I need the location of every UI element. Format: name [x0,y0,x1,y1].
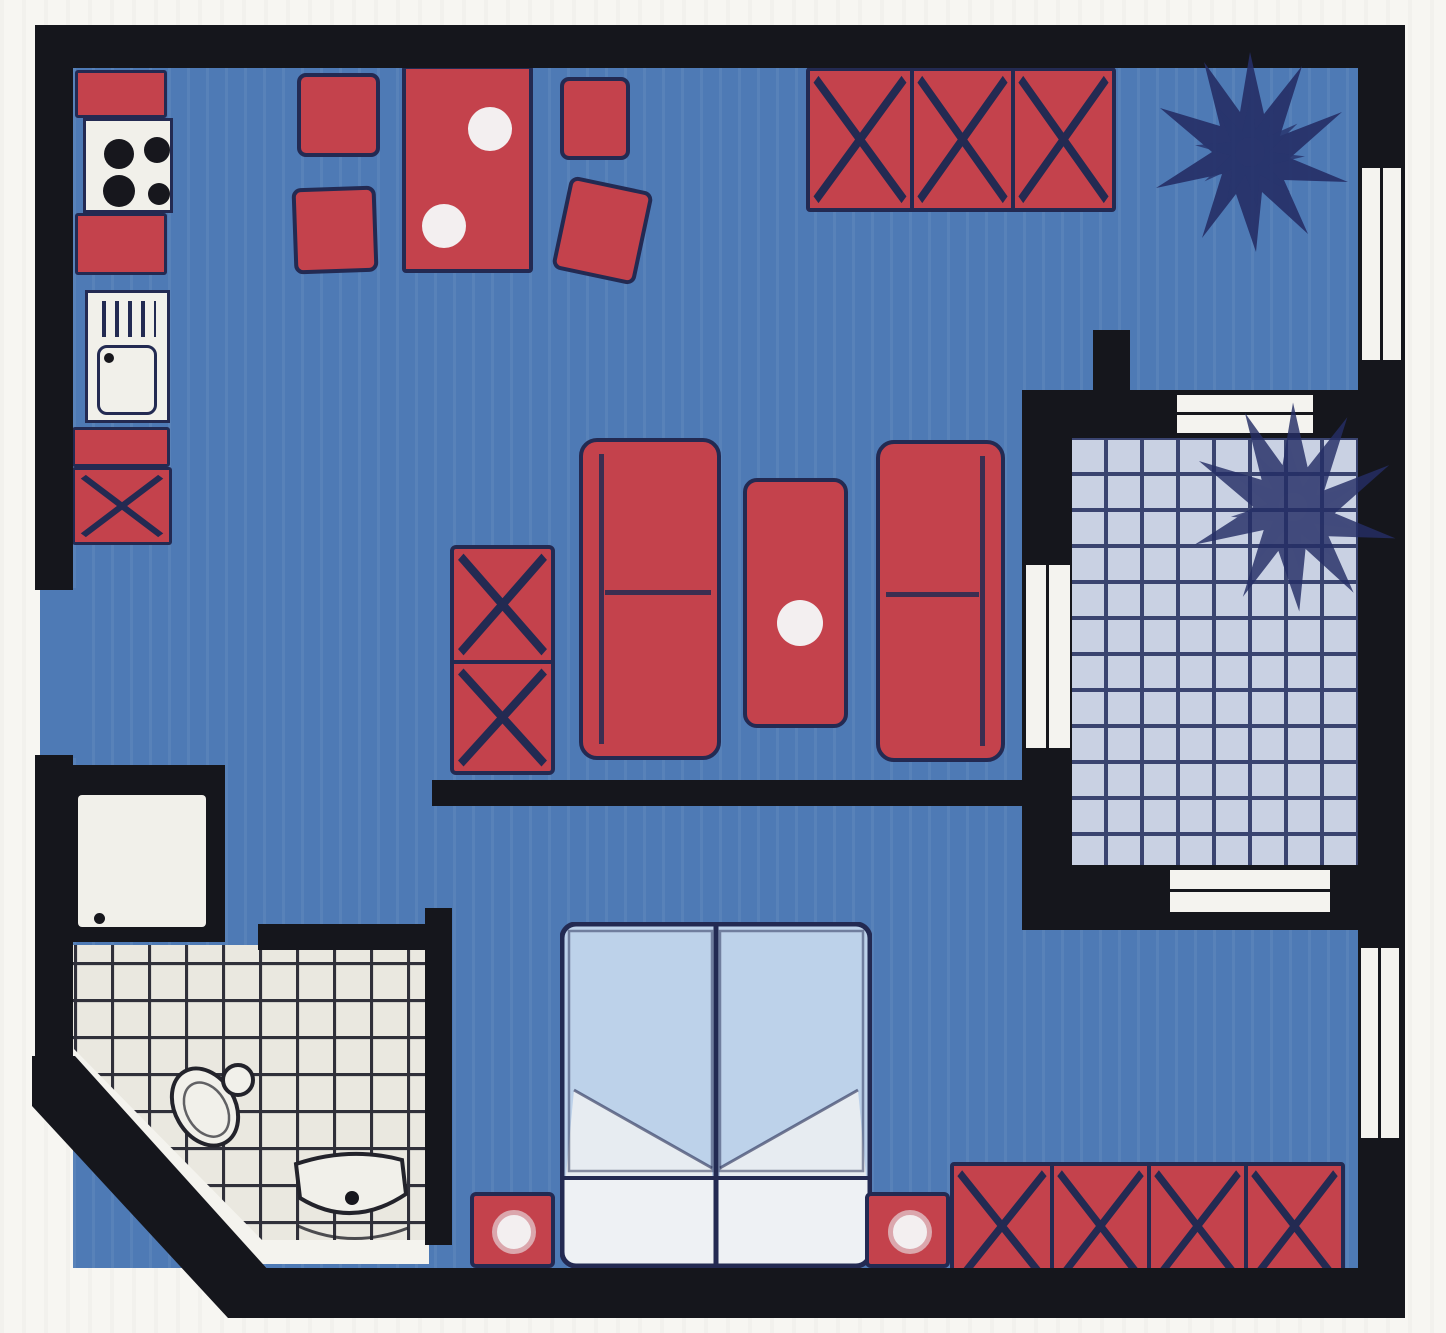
balcony-door [1026,565,1070,748]
stove-burner [103,175,135,207]
stove-burner [104,139,134,169]
wall-living-bedroom [432,780,1032,806]
stove-burner [148,183,170,205]
tall-cabinet [450,545,555,775]
potted-plant-living [1140,42,1360,262]
basin-drain [345,1191,359,1205]
potted-plant-balcony [1178,392,1408,622]
sofa-backrest-line [980,456,985,746]
plate [422,204,466,248]
sofa-seat-divider [605,590,711,595]
sofa-backrest-line [599,454,604,744]
toilet-cistern [223,1065,253,1095]
wall-left-upper [35,25,73,590]
wall-bottom [240,1268,1405,1318]
nightstand-lamp [492,1210,536,1254]
wall-stub [1093,330,1130,395]
nightstand-left [470,1192,555,1268]
washer-valve [94,913,105,924]
floor-plan [0,0,1446,1333]
cabinet-x-panel [454,549,551,660]
sink-drain [104,353,114,363]
wall-bathroom-top [258,924,452,950]
kitchen-counter-mid [75,213,167,275]
window-right-top [1362,168,1401,360]
kitchen-base-cabinet [72,467,172,545]
sofa-seat-divider [886,592,979,597]
wall-bathroom-side [425,908,452,1245]
window-pane-line [1380,168,1383,360]
window-pane-line [1170,889,1330,892]
wall-left-lower [35,755,73,1105]
kitchen-sink-unit [85,290,170,423]
dining-chair [560,77,630,160]
coffee-table [743,478,848,728]
sideboard-x-panel [1011,71,1112,208]
double-bed [560,922,872,1268]
sofa-left [579,438,721,760]
kitchen-counter-low [72,427,170,467]
balcony-window-bottom [1170,870,1330,912]
sofa-right [876,440,1005,762]
basin-counter-edge [298,1226,408,1239]
sideboard-x-panel [810,71,910,208]
nightstand-lamp [888,1210,932,1254]
cabinet-x-panel [454,660,551,771]
stove-burner [144,137,170,163]
sideboard-x-panel [910,71,1011,208]
kitchen-counter-top [75,70,167,118]
nightstand-right [865,1192,950,1268]
plate [777,600,823,646]
door-pane-line [1046,565,1049,748]
window-pane-line [1378,948,1381,1138]
washing-machine [78,795,206,927]
dining-chair [297,73,380,157]
kitchen-stove [83,118,173,213]
dining-chair [292,186,379,275]
cabinet-x-panel [77,472,167,540]
window-right-bottom [1361,948,1399,1138]
sink-drainer-grooves [102,301,156,337]
plate [468,107,512,151]
dining-table [402,65,533,273]
sideboard [806,67,1116,212]
